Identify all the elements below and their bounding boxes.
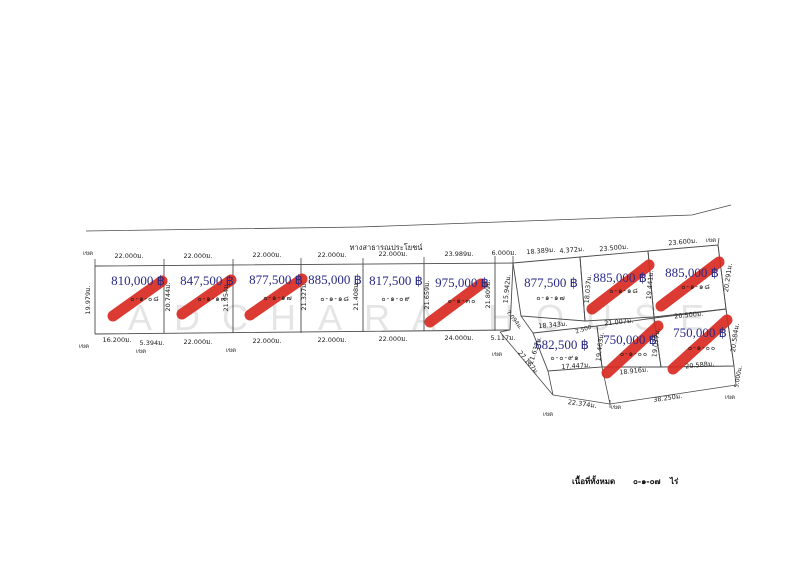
- dimension-label: 19.979ม.: [84, 285, 92, 314]
- price-label-plot-12: 750,000 ฿: [673, 325, 727, 340]
- dimension-label: 21.659ม.: [423, 280, 431, 309]
- area-label-plot-6: ๐-๑-๓๐: [448, 297, 477, 305]
- area-label-plot-7: ๐-๑-๑๗: [536, 294, 565, 302]
- plan-drawing: ADCHARA HOUSE ทางสาธารณประโยชน์ 810,000 …: [0, 0, 800, 561]
- dimension-label: 21.809ม.: [484, 279, 492, 308]
- area-label-plot-11: ๐-๑-๐๐: [620, 350, 648, 358]
- boundary-marker-label: เขต: [543, 411, 553, 418]
- dimension-label: 22.000ม.: [183, 252, 212, 260]
- area-label-plot-8: ๐-๑-๑๘: [609, 287, 639, 295]
- dimension-label: 5.000ม.: [734, 365, 744, 388]
- price-label-plot-11: 750,000 ฿: [603, 332, 657, 347]
- dimension-label: 22.000ม.: [378, 250, 407, 258]
- price-label-plot-7: 877,500 ฿: [524, 275, 578, 290]
- dimension-label: 23.989ม.: [444, 250, 473, 258]
- dimension-label: 22.374ม.: [567, 398, 597, 410]
- price-label-plot-3: 877,500 ฿: [249, 272, 303, 287]
- road-boundary-line: [86, 205, 731, 231]
- dimension-label: 22.000ม.: [378, 335, 407, 343]
- price-label-plot-10: 682,500 ฿: [535, 337, 589, 352]
- dimension-label: 24.000ม.: [444, 334, 473, 342]
- boundary-marker-label: เขต: [611, 404, 621, 411]
- legend-area-value: ๐-๑-๐๗: [633, 477, 661, 486]
- dimension-label: 18.916ม.: [619, 366, 649, 377]
- dimension-label: 21.327ม.: [300, 281, 308, 310]
- dimension-label: 22.000ม.: [317, 336, 346, 344]
- price-label-plot-6: 975,000 ฿: [435, 275, 489, 290]
- price-label-plot-9: 885,000 ฿: [665, 265, 719, 280]
- dimension-label: 17.447ม.: [561, 361, 591, 371]
- dimension-label: 22.000ม.: [317, 251, 346, 259]
- dimension-label: 23.600ม.: [668, 237, 698, 248]
- area-label-plot-4: ๐-๑-๑๘: [320, 295, 350, 303]
- dimension-label: 20.588ม.: [685, 360, 715, 371]
- area-label-plot-12: ๐-๑-๐๐: [688, 344, 716, 352]
- dimension-label: 20.584ม.: [729, 323, 741, 353]
- price-label-plot-1: 810,000 ฿: [111, 273, 165, 288]
- dimension-label: 21.408ม.: [352, 281, 360, 310]
- area-label-plot-1: ๐-๑-๐๘: [130, 295, 159, 303]
- boundary-marker-label: เขต: [226, 347, 236, 354]
- dimension-label: 6.000ม.: [492, 249, 517, 257]
- dimension-label: 16.200ม.: [102, 336, 131, 344]
- dimension-label: 18.389ม.: [526, 246, 556, 257]
- dimension-label: 23.500ม.: [599, 243, 629, 254]
- dimension-label: 20.744ม.: [164, 282, 172, 311]
- boundary-marker-label: เขต: [136, 348, 146, 355]
- legend-area-unit: ไร่: [669, 476, 679, 486]
- dimension-label: 4.372ม.: [559, 245, 585, 255]
- dimension-label: 22.000ม.: [114, 252, 143, 260]
- area-label-plot-3: ๐-๑-๑๗: [263, 294, 292, 302]
- area-label-plot-5: ๐-๑-๐๙: [381, 295, 410, 303]
- dimension-label: 22.000ม.: [252, 337, 281, 345]
- legend-area-label: เนื้อที่ทั้งหมด: [572, 475, 615, 486]
- price-label-plot-8: 885,000 ฿: [593, 270, 647, 285]
- area-label-plot-10: ๐-๐-๙๑: [550, 354, 579, 362]
- area-label-plot-9: ๐-๑-๑๘: [681, 283, 711, 291]
- dimension-label: 5.394ม.: [140, 339, 165, 347]
- dimension-label: 20.291ม.: [722, 263, 734, 293]
- dimension-label: 22.000ม.: [252, 251, 281, 259]
- dimension-label: 5.117ม.: [491, 334, 516, 342]
- boundary-marker-label: เขต: [79, 343, 89, 350]
- price-label-plot-5: 817,500 ฿: [369, 273, 423, 288]
- dimension-label: 38.250ม.: [653, 392, 683, 404]
- dimension-label: 22.000ม.: [183, 338, 212, 346]
- dimension-label: 19.441ม.: [645, 270, 656, 300]
- boundary-marker-label: เขต: [492, 351, 502, 358]
- boundary-marker-label: เขต: [706, 237, 716, 244]
- land-subdivision-plan: ADCHARA HOUSE ทางสาธารณประโยชน์ 810,000 …: [0, 0, 800, 561]
- boundary-marker-label: เขต: [725, 394, 735, 401]
- boundary-marker-label: เขต: [83, 250, 93, 257]
- dimension-label: 21.954ม.: [222, 282, 230, 311]
